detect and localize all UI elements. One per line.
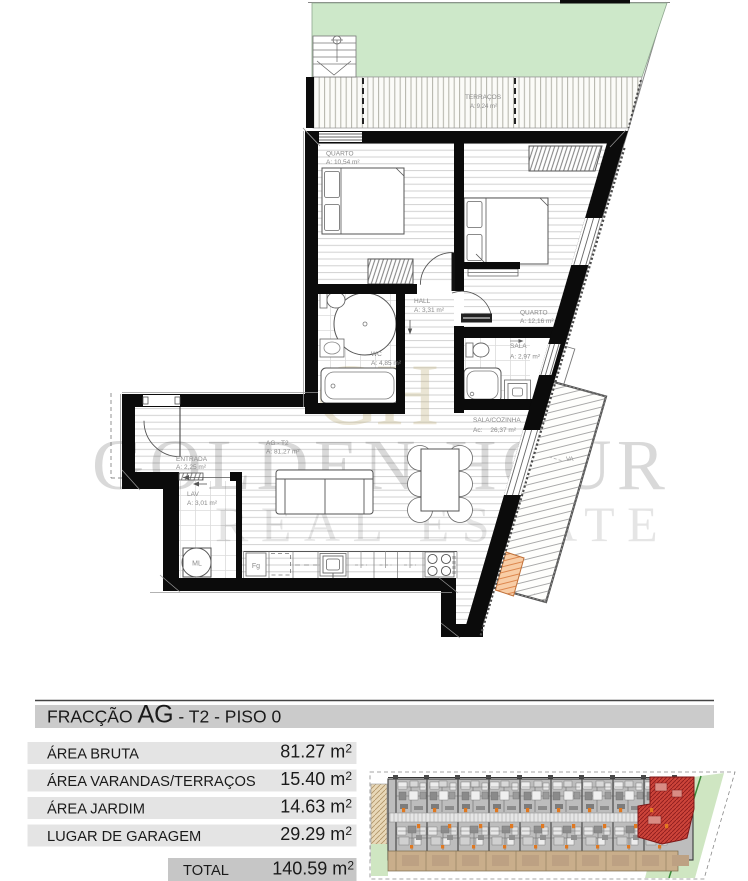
svg-text:A: 2,97 m²: A: 2,97 m² xyxy=(510,354,541,361)
svg-text:VA: VA xyxy=(566,457,574,463)
svg-text:HALL: HALL xyxy=(414,298,431,305)
svg-text:SALA/COZINHA: SALA/COZINHA xyxy=(473,417,521,424)
svg-text:A: 3,01 m²: A: 3,01 m² xyxy=(187,500,218,507)
svg-text:TOTAL: TOTAL xyxy=(183,863,229,879)
svg-text:SALA: SALA xyxy=(510,343,527,350)
svg-text:A: 81,27 m²: A: 81,27 m² xyxy=(266,449,300,456)
svg-text:15.40 m2: 15.40 m2 xyxy=(280,769,352,789)
svg-text:9,24 m²: 9,24 m² xyxy=(477,104,497,110)
svg-text:ÁREA VARANDAS/TERRAÇOS: ÁREA VARANDAS/TERRAÇOS xyxy=(47,773,256,790)
svg-text:26,37 m²: 26,37 m² xyxy=(490,427,516,434)
svg-text:A: 10,54 m²: A: 10,54 m² xyxy=(326,159,360,166)
svg-text:ÁREA BRUTA: ÁREA BRUTA xyxy=(47,746,139,763)
svg-text:ÁREA JARDIM: ÁREA JARDIM xyxy=(47,801,145,818)
svg-text:WC: WC xyxy=(371,351,382,358)
svg-text:A: 4,85 m²: A: 4,85 m² xyxy=(371,360,402,367)
svg-text:29.29 m2: 29.29 m2 xyxy=(280,824,352,844)
svg-text:Ac:: Ac: xyxy=(473,427,483,434)
svg-text:ML: ML xyxy=(192,561,202,568)
svg-text:A: 3,31 m²: A: 3,31 m² xyxy=(414,307,445,314)
svg-text:AG - T2: AG - T2 xyxy=(266,440,289,447)
svg-text:LAV: LAV xyxy=(187,491,199,498)
svg-text:Fg: Fg xyxy=(252,563,260,570)
svg-text:TERRAÇOS: TERRAÇOS xyxy=(465,94,502,101)
svg-text:A: 2,25 m²: A: 2,25 m² xyxy=(176,464,207,471)
svg-text:QUARTO: QUARTO xyxy=(326,151,354,158)
svg-text:A:: A: xyxy=(470,104,476,110)
svg-text:A: 12,16 m²: A: 12,16 m² xyxy=(520,318,554,325)
svg-text:LUGAR DE GARAGEM: LUGAR DE GARAGEM xyxy=(47,829,201,845)
svg-text:140.59 m2: 140.59 m2 xyxy=(272,859,354,879)
svg-text:QUARTO: QUARTO xyxy=(520,310,548,317)
svg-text:81.27 m2: 81.27 m2 xyxy=(280,742,352,762)
svg-text:ENTRADA: ENTRADA xyxy=(176,456,208,463)
svg-text:14.63 m2: 14.63 m2 xyxy=(280,797,352,817)
